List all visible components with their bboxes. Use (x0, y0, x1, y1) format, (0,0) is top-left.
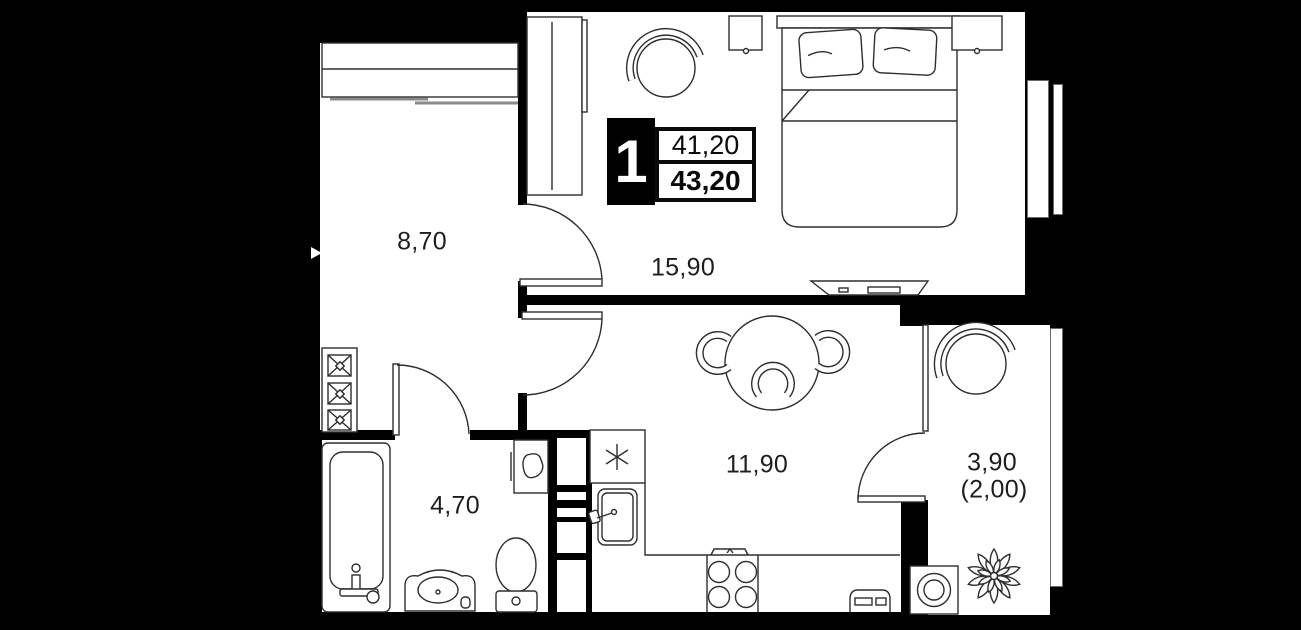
furniture-layer (0, 0, 1301, 630)
dining-chair (700, 335, 729, 371)
hallway-area-label: 8,70 (397, 228, 447, 257)
balcony-door (858, 325, 928, 502)
stove (707, 549, 758, 612)
bathroom-vanity-sink (405, 570, 475, 611)
bedroom-wardrobe (527, 17, 587, 195)
unit-total-area: 43,20 (655, 160, 756, 202)
kitchen-door (522, 312, 602, 395)
unit-badge: 1 41,20 43,20 (607, 118, 756, 205)
duct-shaft (548, 430, 592, 612)
pillow (798, 29, 863, 78)
unit-upper-area: 41,20 (655, 127, 756, 164)
bed (777, 16, 960, 227)
dining-chair (817, 334, 846, 370)
bathroom-door (393, 364, 469, 435)
pillow (873, 27, 937, 75)
floor-plan: 8,70 15,90 11,90 4,70 3,90 (2,00) 1 41,2… (0, 0, 1301, 630)
fridge (590, 430, 645, 483)
toilet (496, 538, 537, 612)
kitchen-sink (588, 489, 637, 545)
bedroom-door (520, 204, 602, 286)
entrance-arrow-icon (311, 247, 322, 259)
bedroom-area-label: 15,90 (651, 254, 715, 283)
balcony-area-factor-label: (2,00) (960, 476, 1027, 505)
bathroom-area-label: 4,70 (430, 492, 480, 521)
wall-cabinet-basin (511, 440, 548, 493)
plant (967, 549, 1021, 603)
nightstand-right (952, 16, 1002, 54)
kitchen-appliance (850, 590, 890, 612)
tv-console (811, 281, 928, 295)
hallway-wardrobe (322, 43, 518, 103)
kitchen-counter (645, 483, 900, 555)
vent-shaft-boxes (322, 348, 357, 432)
kitchen-area-label: 11,90 (726, 451, 788, 480)
nightstand-left (729, 16, 762, 54)
bedroom-armchair (630, 32, 700, 97)
washing-machine (910, 566, 958, 614)
unit-rooms-count: 1 (607, 118, 655, 205)
bathtub (322, 443, 390, 612)
balcony-chair (938, 326, 1012, 394)
balcony-area-label: 3,90 (967, 449, 1017, 478)
